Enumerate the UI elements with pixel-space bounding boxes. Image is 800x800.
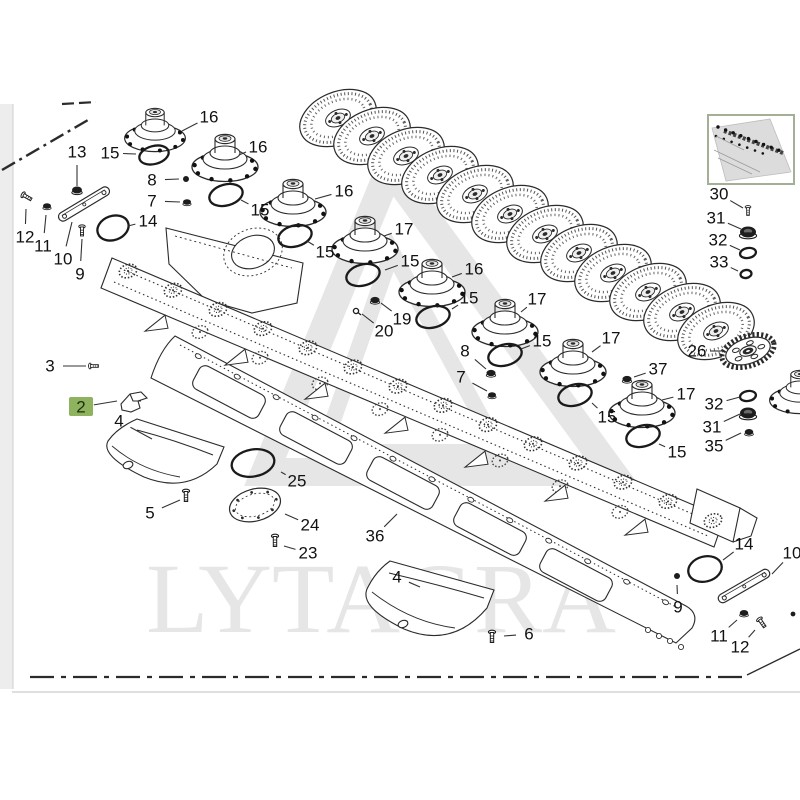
callout-number[interactable]: 17: [602, 329, 621, 348]
fastener-dot: [674, 573, 680, 579]
callout-number[interactable]: 36: [366, 527, 385, 546]
callout-number[interactable]: 3: [45, 357, 54, 376]
callout-number[interactable]: 6: [524, 625, 533, 644]
callout-leader: [521, 307, 527, 312]
callout-leader: [315, 194, 331, 199]
callout-leader: [44, 215, 46, 233]
o-ring: [739, 390, 756, 403]
fastener-screw: [182, 489, 189, 501]
fastener-dot: [791, 612, 796, 617]
callout-number[interactable]: 35: [705, 437, 724, 456]
fastener-screw: [89, 363, 99, 369]
callout-number[interactable]: 16: [335, 182, 354, 201]
callout-leader: [724, 414, 740, 422]
callout-leader: [728, 223, 741, 229]
callout-leader: [662, 397, 673, 400]
callout-leader: [94, 401, 117, 405]
callout-leader: [475, 359, 486, 369]
callout-15[interactable]: 15: [592, 403, 616, 427]
callout-36[interactable]: 36: [366, 514, 397, 546]
callout-10[interactable]: 10: [54, 222, 73, 269]
callout-number[interactable]: 16: [200, 108, 219, 127]
fastener-screw: [745, 206, 751, 216]
fastener-nut: [72, 187, 82, 195]
link-bar: [717, 568, 772, 605]
fastener-pin: [353, 308, 361, 315]
callout-number[interactable]: 24: [301, 516, 320, 535]
callout-24[interactable]: 24: [285, 514, 319, 535]
callout-32[interactable]: 32: [709, 231, 740, 251]
callout-12[interactable]: 12: [16, 209, 35, 247]
fastener-nut: [486, 370, 495, 377]
callout-number[interactable]: 7: [147, 192, 156, 211]
o-ring: [207, 180, 245, 209]
callout-leader: [307, 241, 314, 245]
callout-35[interactable]: 35: [705, 433, 741, 456]
fastener-screw: [79, 225, 85, 236]
callout-number[interactable]: 11: [34, 237, 52, 256]
callout-number[interactable]: 15: [251, 201, 270, 220]
callout-leader: [731, 268, 738, 271]
callout-number[interactable]: 25: [288, 472, 307, 491]
callout-number[interactable]: 12: [16, 228, 35, 247]
callout-17[interactable]: 17: [384, 220, 413, 239]
callout-number[interactable]: 37: [649, 360, 668, 379]
disc-hub: [260, 179, 326, 227]
callout-number[interactable]: 17: [528, 290, 547, 309]
fastener-screw: [20, 191, 33, 202]
callout-number[interactable]: 10: [54, 250, 73, 269]
fastener-nut: [43, 203, 51, 209]
callout-leader: [25, 209, 26, 224]
cover-plate-24: [226, 483, 285, 527]
callout-number[interactable]: 11: [710, 627, 728, 646]
callout-leader: [730, 245, 740, 250]
thumbnail-inset[interactable]: [708, 115, 794, 184]
callout-8[interactable]: 8: [460, 342, 486, 370]
skid-plate-front: [107, 419, 224, 483]
o-ring: [685, 553, 724, 586]
fastener-nut: [488, 392, 496, 398]
callout-leader: [730, 201, 743, 208]
callout-number[interactable]: 15: [101, 144, 120, 163]
callout-number[interactable]: 9: [75, 265, 84, 284]
callout-leader: [659, 444, 665, 447]
fastener-screw: [756, 616, 768, 629]
callout-16[interactable]: 16: [315, 182, 353, 201]
callout-number[interactable]: 32: [705, 395, 724, 414]
section-cut-line-bottom-end: [747, 649, 800, 675]
callout-leader: [749, 630, 755, 637]
callout-number[interactable]: 16: [249, 138, 268, 157]
callout-number[interactable]: 9: [673, 598, 682, 617]
callout-number[interactable]: 15: [668, 443, 687, 462]
callout-number[interactable]: 30: [710, 185, 729, 204]
callout-31[interactable]: 31: [707, 209, 741, 230]
callout-number[interactable]: 16: [465, 260, 484, 279]
callout-leader: [726, 433, 741, 440]
callout-leader: [285, 514, 298, 520]
callout-7[interactable]: 7: [147, 192, 180, 211]
callout-leader: [162, 500, 180, 508]
callout-2[interactable]: 2: [69, 397, 117, 417]
callout-number[interactable]: 17: [677, 385, 696, 404]
callout-leader: [384, 514, 397, 527]
callout-number[interactable]: 12: [731, 638, 750, 657]
callout-number[interactable]: 10: [783, 544, 800, 563]
callout-number[interactable]: 4: [114, 412, 123, 431]
callout-leader: [81, 239, 82, 261]
fastener-nut: [183, 199, 191, 205]
callout-16[interactable]: 16: [239, 138, 267, 157]
disc-hub: [770, 370, 800, 414]
callout-leader: [592, 346, 601, 352]
callout-number[interactable]: 26: [688, 342, 707, 361]
callout-number[interactable]: 15: [598, 408, 617, 427]
callout-leader: [772, 562, 783, 574]
parts-diagram-page: LYTAGRA: [0, 0, 800, 800]
fastener-nut: [622, 376, 631, 383]
callout-3[interactable]: 3: [45, 357, 86, 376]
callout-16[interactable]: 16: [182, 108, 218, 132]
callout-15[interactable]: 15: [307, 241, 334, 262]
callout-number[interactable]: 5: [145, 504, 154, 523]
callout-leader: [66, 222, 72, 246]
callout-33[interactable]: 33: [710, 253, 738, 272]
callout-37[interactable]: 37: [634, 360, 667, 379]
callout-30[interactable]: 30: [710, 185, 743, 209]
fastener-cap: [739, 408, 756, 420]
disc-hub: [332, 216, 398, 264]
callout-number[interactable]: 2: [76, 398, 85, 417]
callout-8[interactable]: 8: [147, 171, 179, 190]
callout-number[interactable]: 19: [393, 310, 412, 329]
callout-leader: [723, 552, 734, 560]
callout-number[interactable]: 17: [395, 220, 414, 239]
callout-leader: [452, 305, 458, 309]
o-ring: [740, 269, 752, 279]
callout-leader: [241, 200, 248, 204]
callout-leader: [727, 397, 740, 401]
callout-number[interactable]: 15: [316, 243, 335, 262]
callout-number[interactable]: 15: [460, 289, 479, 308]
callout-number[interactable]: 8: [460, 342, 469, 361]
callout-number[interactable]: 31: [707, 209, 726, 228]
callout-17[interactable]: 17: [662, 385, 695, 404]
callout-leader: [729, 620, 737, 627]
o-ring: [94, 211, 132, 244]
fastener-nut: [745, 429, 754, 436]
page-edge-strip: [0, 104, 13, 689]
callout-number[interactable]: 15: [401, 252, 420, 271]
callout-15[interactable]: 15: [241, 200, 269, 220]
callout-9[interactable]: 9: [75, 239, 84, 284]
callout-number[interactable]: 23: [299, 544, 318, 563]
callout-5[interactable]: 5: [145, 500, 180, 523]
callout-9[interactable]: 9: [673, 585, 682, 617]
callout-leader: [182, 123, 197, 131]
disc-hub: [609, 380, 675, 428]
callout-17[interactable]: 17: [521, 290, 546, 313]
callout-number[interactable]: 4: [392, 568, 401, 587]
callout-leader: [381, 303, 392, 311]
callout-number[interactable]: 15: [533, 332, 552, 351]
callout-13[interactable]: 13: [68, 143, 87, 187]
callout-number[interactable]: 31: [703, 418, 722, 437]
callout-14[interactable]: 14: [128, 212, 157, 231]
callout-number[interactable]: 14: [735, 535, 754, 554]
callout-15[interactable]: 15: [659, 443, 686, 462]
callout-number[interactable]: 14: [139, 212, 158, 231]
callout-12[interactable]: 12: [731, 630, 755, 657]
callout-number[interactable]: 13: [68, 143, 87, 162]
fastener-dot: [183, 176, 189, 182]
callout-number[interactable]: 33: [710, 253, 729, 272]
section-cut-tick: [62, 102, 96, 104]
callout-number[interactable]: 7: [456, 368, 465, 387]
link-bar: [57, 185, 111, 223]
fastener-cap: [739, 227, 756, 239]
callout-31[interactable]: 31: [703, 414, 740, 437]
callout-leader: [165, 201, 180, 202]
callout-11[interactable]: 11: [34, 215, 52, 256]
callout-number[interactable]: 8: [147, 171, 156, 190]
callout-32[interactable]: 32: [705, 395, 740, 414]
callout-number[interactable]: 20: [375, 322, 394, 341]
callout-leader: [123, 153, 136, 154]
callout-10[interactable]: 10: [772, 544, 800, 575]
callout-17[interactable]: 17: [592, 329, 620, 353]
callout-number[interactable]: 32: [709, 231, 728, 250]
shoe-bracket-part-2: [121, 392, 147, 412]
fastener-nut: [740, 610, 749, 617]
callout-leader: [634, 373, 646, 377]
callout-leader: [165, 179, 179, 180]
o-ring: [739, 247, 756, 260]
